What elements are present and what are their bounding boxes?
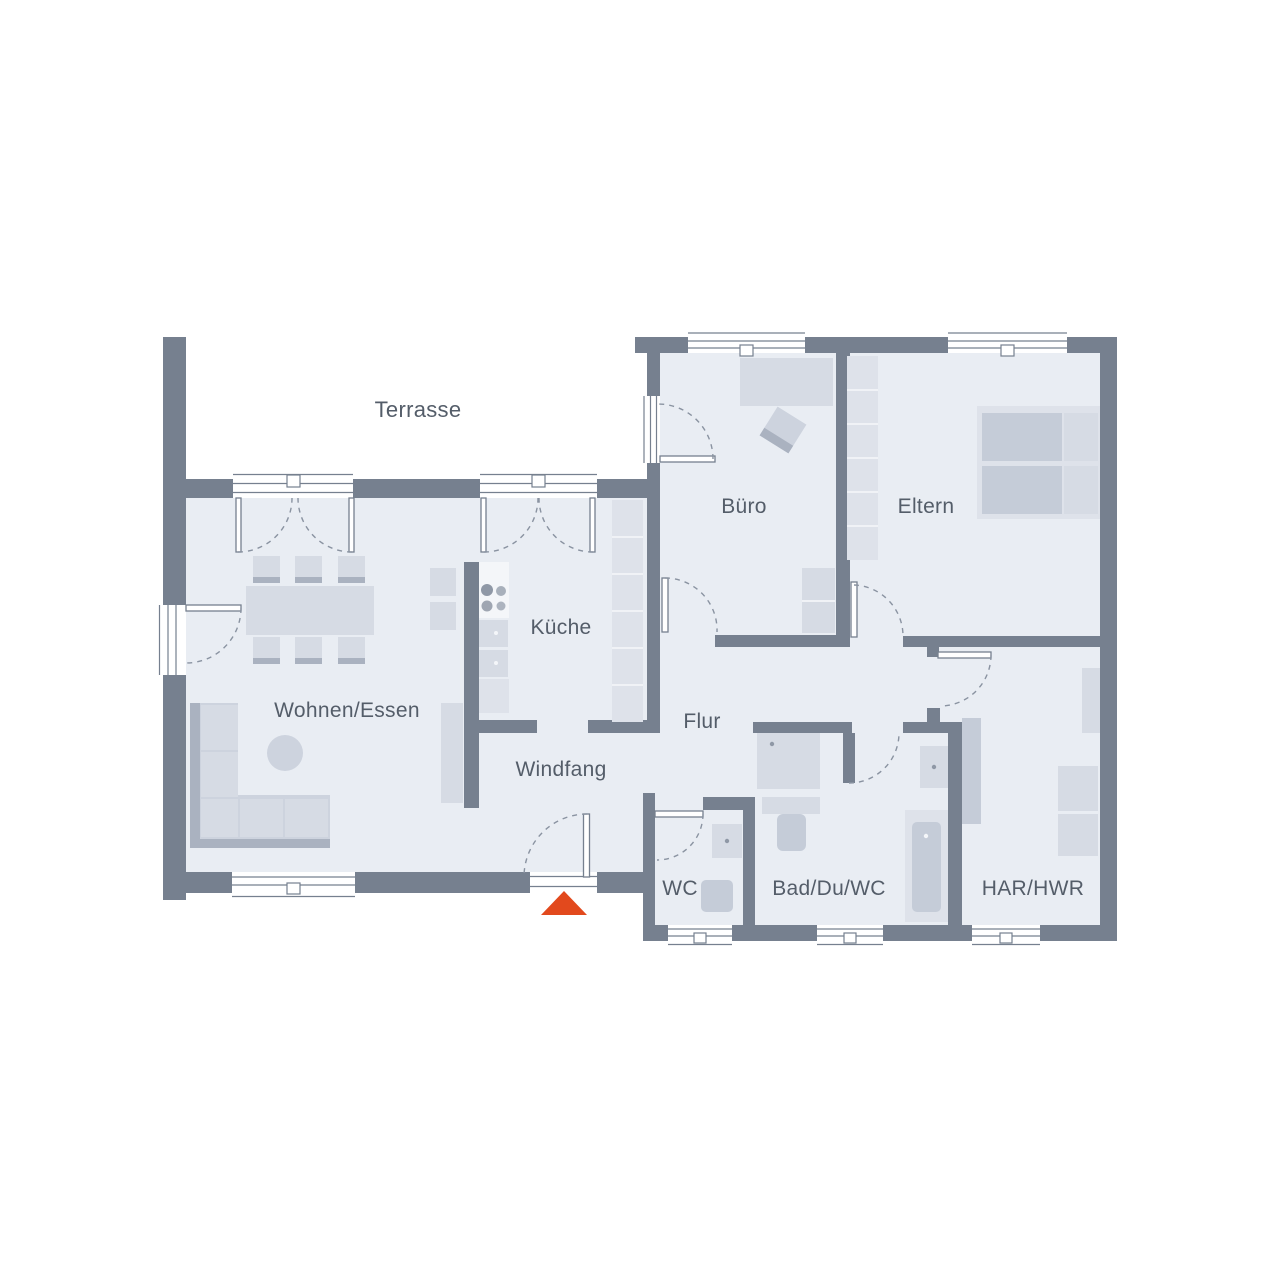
toilet-wc xyxy=(701,880,733,912)
room-label-flur: Flur xyxy=(683,710,720,734)
window-buero-icon xyxy=(688,333,805,356)
highboard xyxy=(430,602,456,630)
floorplan-drawing xyxy=(0,0,1280,1280)
wall-stub-har-a xyxy=(927,647,939,657)
window-wc-icon xyxy=(668,925,732,945)
door-leaf xyxy=(590,498,595,552)
washbasin-bad xyxy=(920,746,948,788)
terrace-door-buero-icon xyxy=(644,396,660,463)
wardrobe-eltern xyxy=(847,356,878,560)
room-label-terrasse: Terrasse xyxy=(375,397,462,423)
room-label-eltern: Eltern xyxy=(898,495,955,519)
window-eltern-icon xyxy=(948,333,1067,356)
wall-kueche-bottom-left xyxy=(479,720,537,733)
window-bad-icon xyxy=(817,925,883,945)
door-leaf xyxy=(851,582,857,637)
office-shelf xyxy=(802,568,835,633)
room-label-wohnen: Wohnen/Essen xyxy=(274,699,420,723)
door-leaf xyxy=(584,814,590,877)
room-label-buero: Büro xyxy=(721,495,767,519)
wall-bad-door-jamb xyxy=(843,733,855,783)
french-door-living-icon xyxy=(233,475,353,499)
entrance-marker xyxy=(541,891,587,915)
shower xyxy=(757,733,820,789)
wall-eltern-bottom xyxy=(903,636,1100,647)
room-label-wc: WC xyxy=(662,877,698,901)
door-leaf xyxy=(186,605,241,611)
dryer xyxy=(1058,814,1098,856)
dining-table-set xyxy=(246,556,374,664)
highboard xyxy=(430,568,456,596)
wall-bad-har xyxy=(948,722,962,925)
floorplan-page: Terrasse Büro Eltern Küche Wohnen/Essen … xyxy=(0,0,1280,1280)
door-leaf xyxy=(662,578,668,632)
wall-right-exterior xyxy=(1100,337,1117,941)
door-leaf xyxy=(660,456,715,462)
door-leaf xyxy=(655,811,703,817)
wall-buero-bottom xyxy=(715,635,836,647)
bathtub xyxy=(905,810,948,922)
wall-wc-bad xyxy=(743,808,755,925)
wall-wohnen-windfang xyxy=(464,562,479,808)
door-leaf xyxy=(938,652,991,658)
french-door-kitchen-icon xyxy=(480,475,597,499)
wall-wc-top xyxy=(703,797,755,810)
kitchen-cabinets xyxy=(612,500,643,722)
window-har-icon xyxy=(972,925,1040,945)
wall-bad-top xyxy=(753,722,852,733)
double-bed xyxy=(977,406,1100,519)
room-label-windfang: Windfang xyxy=(515,758,606,782)
wall-wc-left xyxy=(643,793,655,925)
washer xyxy=(1058,766,1098,811)
room-label-bad: Bad/Du/WC xyxy=(772,877,886,901)
door-leaf xyxy=(481,498,486,552)
window-wohnen-icon xyxy=(232,872,355,897)
duct-column xyxy=(962,718,981,824)
door-leaf xyxy=(236,498,241,552)
sideboard xyxy=(441,703,463,803)
dining-table xyxy=(246,586,374,635)
tall-cabinet xyxy=(1082,668,1100,733)
room-label-kueche: Küche xyxy=(530,616,591,640)
door-leaf xyxy=(349,498,354,552)
desk xyxy=(740,358,833,406)
terrace-door-living-icon xyxy=(160,605,187,675)
kitchen-counter xyxy=(479,562,509,713)
washbasin-wc xyxy=(712,824,742,858)
coffee-table xyxy=(267,735,303,771)
room-label-har: HAR/HWR xyxy=(982,877,1084,901)
